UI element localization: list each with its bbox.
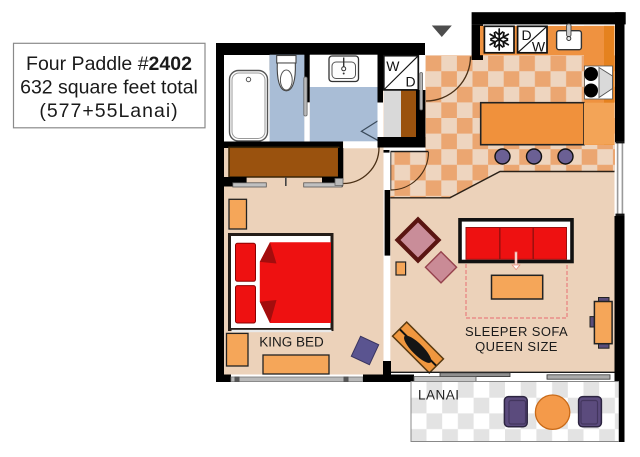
svg-text:KING BED: KING BED xyxy=(259,335,324,350)
svg-text:W: W xyxy=(386,58,400,74)
svg-text:Four Paddle #2402: Four Paddle #2402 xyxy=(26,53,192,75)
svg-text:QUEEN SIZE: QUEEN SIZE xyxy=(475,339,558,354)
svg-text:D: D xyxy=(521,27,531,43)
svg-text:LANAI: LANAI xyxy=(418,388,460,403)
svg-text:W: W xyxy=(532,39,546,55)
svg-text:632 square feet total: 632 square feet total xyxy=(20,77,198,99)
svg-text:D: D xyxy=(405,74,415,90)
svg-text:SLEEPER SOFA: SLEEPER SOFA xyxy=(465,324,568,339)
svg-text:(577+55Lanai): (577+55Lanai) xyxy=(39,100,178,122)
